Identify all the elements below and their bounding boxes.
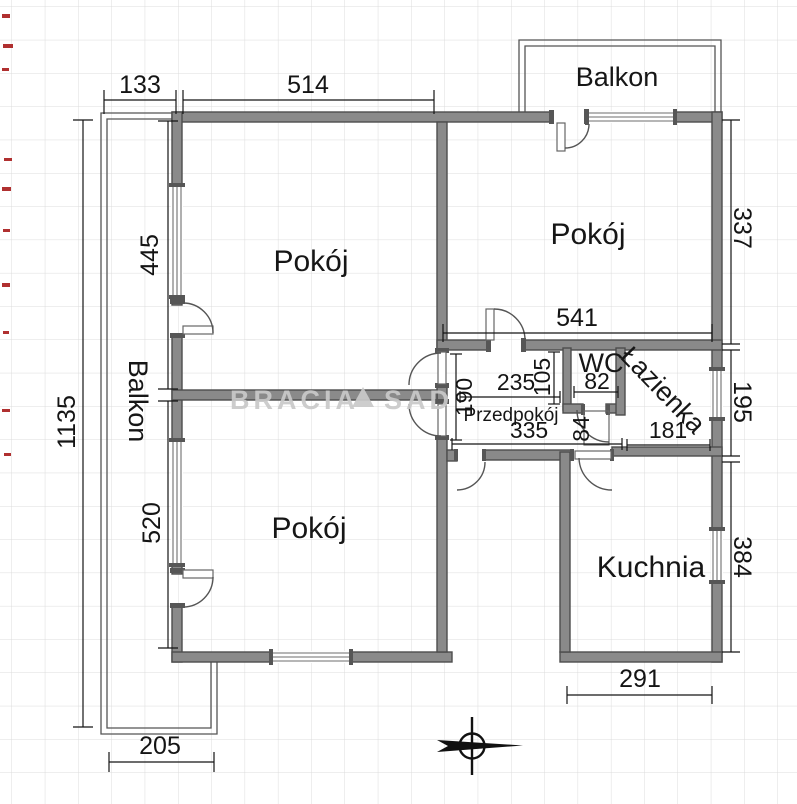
floor-plan-svg: BRACIA SAD Pokój Pokój Pokój Kuchnia Bal… — [0, 0, 797, 804]
room-label-balkon-left: Balkon — [123, 360, 153, 443]
dim-520-label: 520 — [138, 502, 166, 544]
watermark: BRACIA SAD — [230, 385, 453, 415]
dim-514-label: 514 — [287, 71, 329, 99]
window-bathroom — [709, 367, 725, 421]
room-label-pokoj-bottom-left: Pokój — [271, 512, 346, 545]
dim-105-label: 105 — [529, 358, 555, 396]
room-label-pokoj-top-left: Pokój — [273, 245, 348, 278]
dim-445-label: 445 — [136, 234, 164, 276]
window-left-lower — [169, 438, 185, 567]
floor-plan-page: BRACIA SAD Pokój Pokój Pokój Kuchnia Bal… — [0, 0, 797, 804]
dim-541-label: 541 — [556, 304, 598, 332]
watermark-text-2: SAD — [384, 385, 453, 415]
dim-133-label: 133 — [119, 71, 161, 99]
window-top-right-room — [585, 109, 677, 125]
dim-205-label: 205 — [139, 732, 181, 760]
room-label-kuchnia: Kuchnia — [597, 551, 706, 584]
dim-84-label: 84 — [568, 416, 594, 442]
dim-190-label: 190 — [451, 378, 477, 416]
dim-181-label: 181 — [649, 417, 687, 443]
room-label-pokoj-top-right: Pokój — [550, 218, 625, 251]
dim-337-label: 337 — [728, 207, 756, 249]
dim-335-label: 335 — [510, 417, 548, 443]
dim-1135-label: 1135 — [53, 395, 81, 449]
watermark-text-1: BRACIA — [230, 385, 359, 415]
dim-384-label: 384 — [728, 536, 756, 578]
window-bottom-room — [269, 649, 353, 665]
dim-291-label: 291 — [619, 665, 661, 693]
dim-195-label: 195 — [728, 381, 756, 423]
window-kitchen — [709, 527, 725, 584]
room-label-balkon-top: Balkon — [576, 62, 659, 92]
dim-82-label: 82 — [584, 368, 610, 394]
window-left-upper — [169, 183, 185, 299]
